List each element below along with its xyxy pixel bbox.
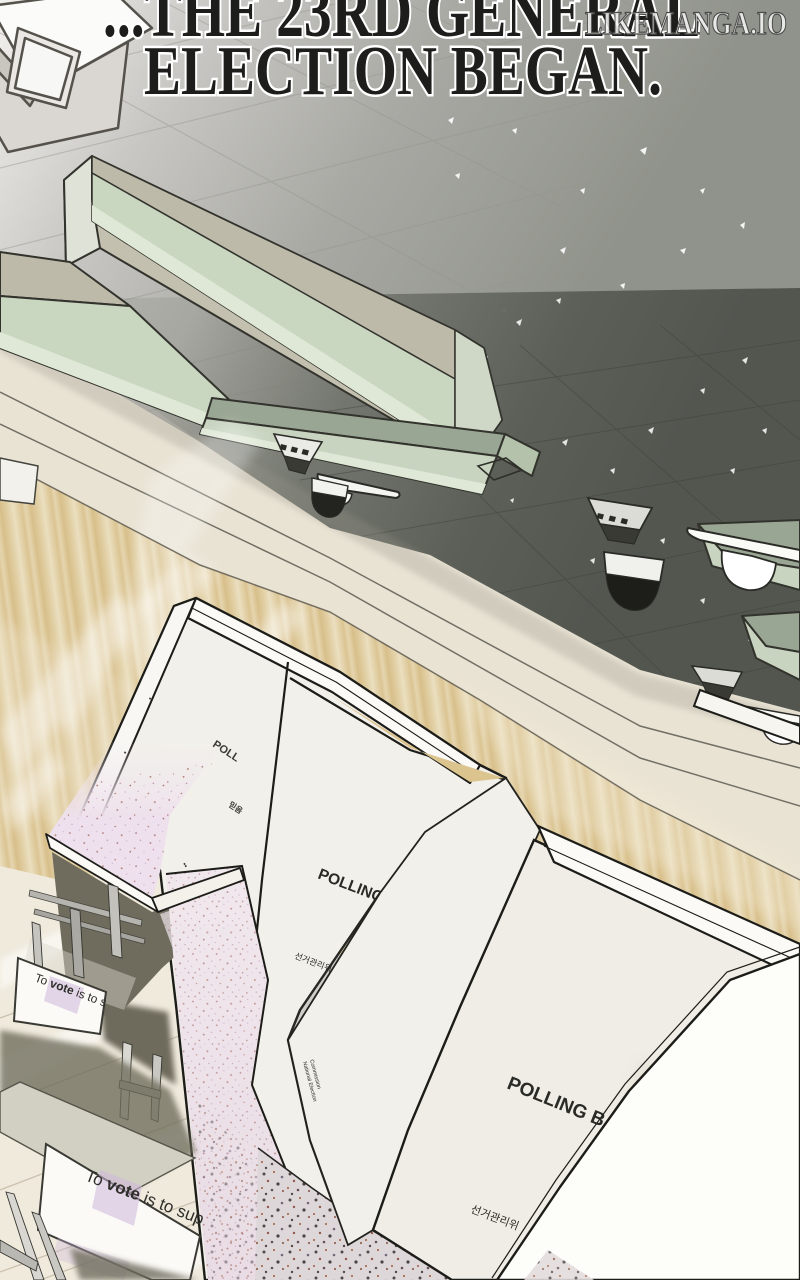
svg-text:LIKEMANGA.IO: LIKEMANGA.IO xyxy=(585,6,787,42)
svg-text:ELECTION BEGAN.: ELECTION BEGAN. xyxy=(144,33,662,110)
